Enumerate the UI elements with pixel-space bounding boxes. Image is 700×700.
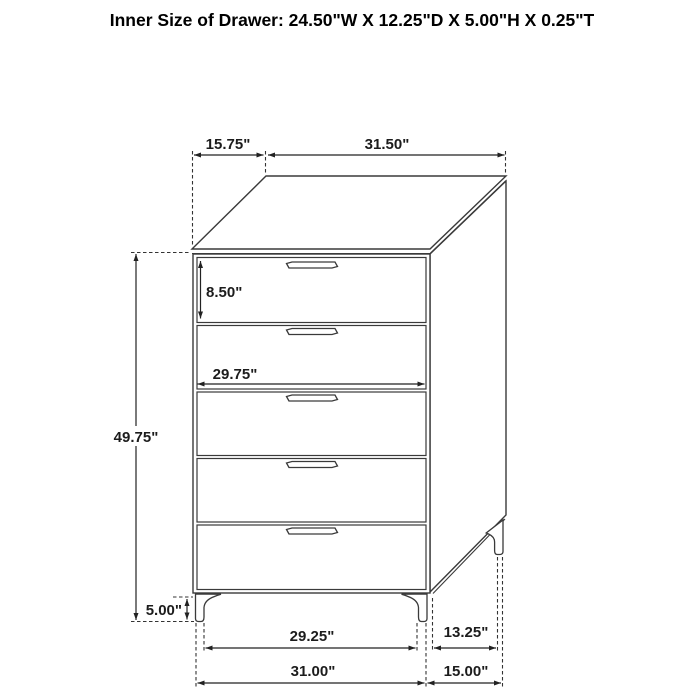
dim-base-width: 31.00": [198, 663, 425, 683]
drawer-1-handle: [287, 262, 338, 268]
drawer-2-handle: [287, 329, 338, 335]
front-right-leg: [402, 594, 428, 622]
dim-label-front-legs-span: 29.25": [290, 628, 335, 645]
dim-label-leg-height: 5.00": [146, 602, 182, 619]
diagram-canvas: Inner Size of Drawer: 24.50"W X 12.25"D …: [0, 0, 700, 700]
chest-dimension-diagram: Inner Size of Drawer: 24.50"W X 12.25"D …: [0, 0, 700, 700]
dim-front-legs-span: 29.25": [206, 628, 416, 648]
dim-label-drawer-height: 8.50": [206, 284, 242, 301]
dim-label-base-width: 31.00": [291, 663, 336, 680]
dim-top-width: 31.50": [268, 136, 506, 175]
dim-leg-height: 5.00": [146, 597, 193, 620]
dim-label-top-depth: 15.75": [206, 136, 251, 153]
chest-drawing: [192, 176, 506, 622]
dim-side-legs-span: 13.25": [434, 624, 496, 648]
page-title: Inner Size of Drawer: 24.50"W X 12.25"D …: [110, 10, 595, 30]
drawer-5: [197, 525, 426, 590]
dim-label-drawer-width: 29.75": [213, 366, 258, 383]
dim-label-base-depth: 15.00": [444, 663, 489, 680]
dim-base-depth: 15.00": [428, 663, 502, 683]
drawer-5-handle: [287, 528, 338, 534]
drawer-3-handle: [287, 395, 338, 401]
front-left-leg: [196, 594, 222, 622]
dim-label-side-legs-span: 13.25": [444, 624, 489, 641]
dim-label-overall-height: 49.75": [114, 429, 159, 446]
dim-overall-height: 49.75": [110, 253, 194, 622]
drawer-4-handle: [287, 462, 338, 468]
dim-label-top-width: 31.50": [365, 136, 410, 153]
